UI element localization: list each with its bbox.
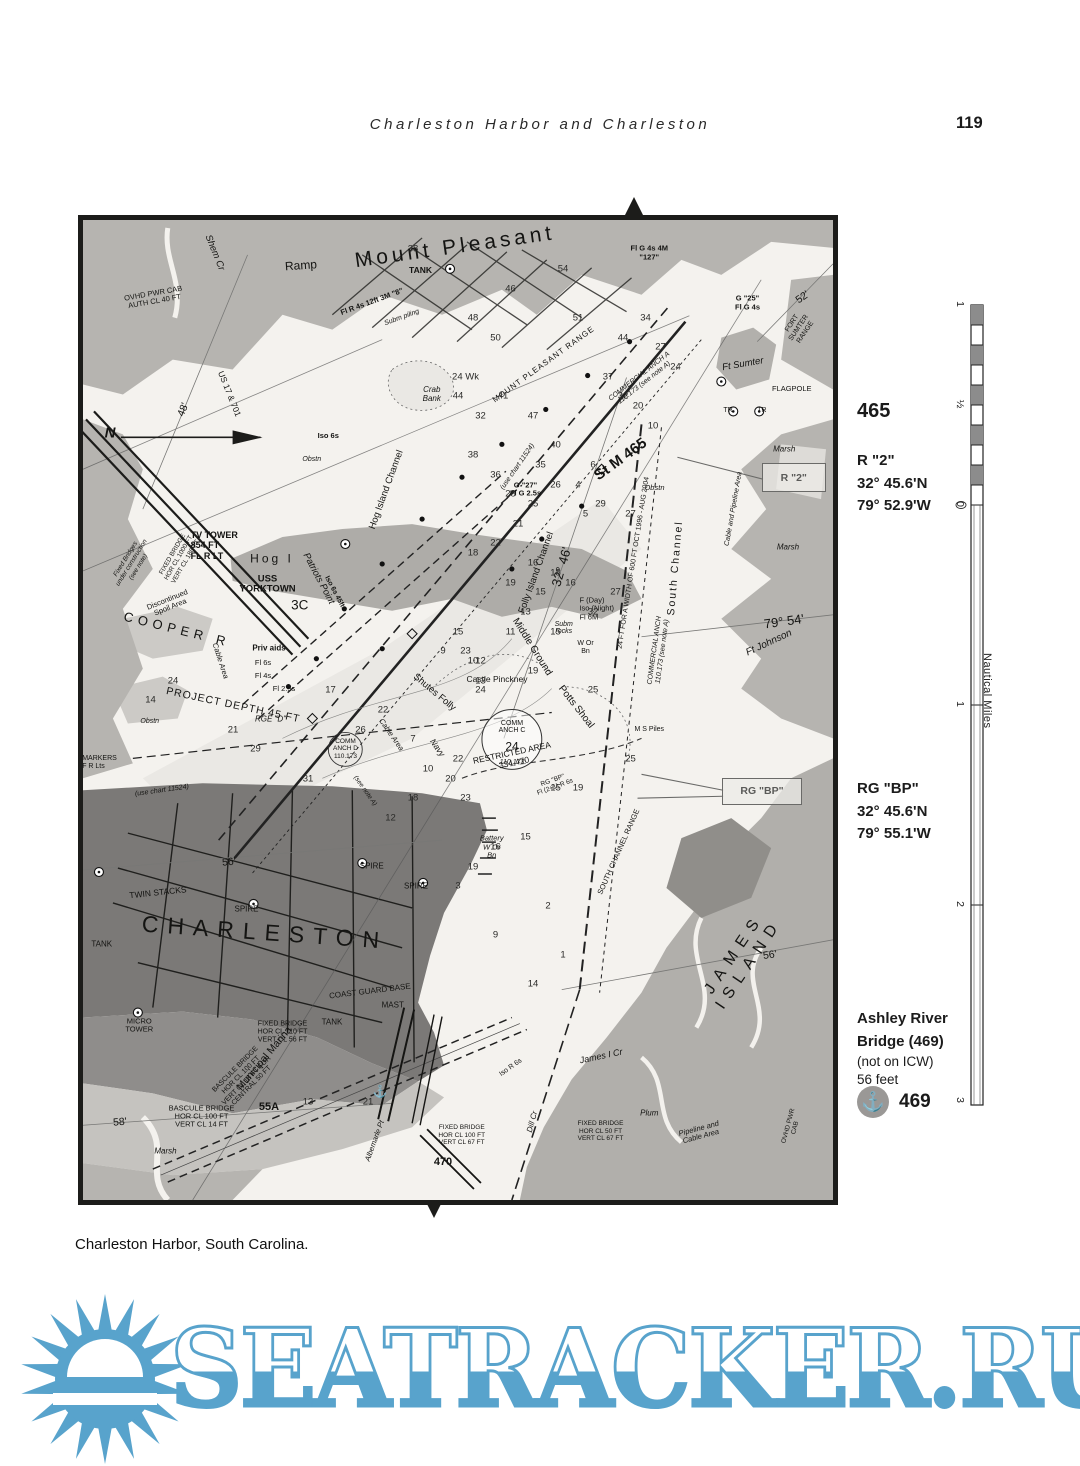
depth-sounding: 32 <box>618 391 629 402</box>
map-label: BASCULE BRIDGE HOR CL 100 FT VERT CL 18 … <box>210 1044 279 1113</box>
map-label: Hog I <box>250 552 294 565</box>
depth-sounding: 14 <box>145 695 156 706</box>
depth-sounding: 54 <box>558 264 569 275</box>
depth-sounding: 25 <box>528 499 539 510</box>
scale-title: Nautical Miles <box>981 653 993 728</box>
anchorage-icon: ⚓ <box>373 1085 388 1098</box>
map-label: Ft Sumter <box>722 356 765 374</box>
chart-labels: R "2" RG "BP" Mount PleasantRampTANKShem… <box>83 220 833 1200</box>
bridge-name-line1: Ashley River <box>857 1008 948 1031</box>
scale-tick: 2 <box>954 896 966 912</box>
depth-sounding: 18 <box>468 548 479 559</box>
map-label: G "25" Fl G 4s <box>735 295 760 312</box>
depth-sounding: 27 <box>610 587 621 598</box>
map-label: OVHD PWR CAB AUTH CL 40 FT <box>124 285 185 312</box>
map-label: TANK <box>91 941 112 950</box>
depth-sounding: 15 <box>520 832 531 843</box>
map-label: 79° 54' <box>763 612 805 632</box>
depth-sounding: 24 <box>670 362 681 373</box>
watermark: SEATRACKER.RU SEATRACKER.RU <box>0 1292 1080 1464</box>
depth-sounding: 24 <box>475 685 486 696</box>
map-label: RGE "D" <box>255 715 286 724</box>
mile-marker-465: 465 <box>857 400 890 423</box>
depth-sounding: 29 <box>595 499 606 510</box>
depth-sounding: 1 <box>560 950 565 961</box>
map-label: (use chart 11524) <box>134 784 189 799</box>
depth-sounding: 16 <box>565 577 576 588</box>
depth-sounding: 51 <box>573 313 584 324</box>
buoy-r2-lon: 79° 52.9'W <box>857 495 931 518</box>
map-label: SPIRE <box>360 862 384 871</box>
depth-sounding: 32 <box>475 411 486 422</box>
buoy-rgbp-info: RG "BP" 32° 45.6'N 79° 55.1'W <box>857 778 931 846</box>
map-label: PROJECT DEPTH 45 FT <box>165 686 301 726</box>
depth-sounding: 19 <box>528 665 539 676</box>
map-label: Obstn <box>140 718 159 726</box>
map-label: Pipeline and Cable Area <box>678 1120 722 1147</box>
map-label: Patriots Point <box>300 551 336 606</box>
depth-sounding: 50 <box>490 332 501 343</box>
depth-sounding: 19 <box>573 783 584 794</box>
chart-caption: Charleston Harbor, South Carolina. <box>75 1236 308 1253</box>
depth-sounding: 6 <box>590 460 595 471</box>
bridge-anchor-row: ⚓ 469 <box>857 1086 931 1118</box>
map-label: M S Piles <box>634 726 664 734</box>
depth-sounding: 25 <box>625 754 636 765</box>
map-label: N <box>105 425 116 442</box>
depth-sounding: 11 <box>506 626 516 637</box>
map-label: Navy <box>428 738 447 759</box>
buoy-rgbp-lat: 32° 45.6'N <box>857 801 931 824</box>
anchor-icon: ⚓ <box>857 1086 889 1118</box>
map-label: James I Cr <box>578 1046 623 1065</box>
map-label: MAST <box>382 1001 404 1010</box>
map-label: Fl 6s <box>255 659 271 667</box>
depth-sounding: 9 <box>440 646 445 657</box>
depth-sounding: 19 <box>505 577 516 588</box>
map-label: COAST GUARD BASE <box>328 983 411 1002</box>
map-label: Ft Johnson <box>744 628 794 659</box>
scale-tick: 3 <box>954 1092 966 1108</box>
map-label: 110.173 <box>500 759 525 767</box>
depth-sounding: 20 <box>445 773 456 784</box>
map-label: Cable and Pipeline Area <box>724 471 745 546</box>
depth-sounding: 41 <box>498 391 509 402</box>
depth-sounding: 37 <box>603 371 614 382</box>
map-label: Fl 4s <box>255 671 271 679</box>
buoy-r2-lat: 32° 45.6'N <box>857 473 931 496</box>
depth-sounding: 15 <box>453 626 464 637</box>
map-label: Fl 2.5s <box>273 685 296 693</box>
map-label: Crab Bank <box>423 386 441 404</box>
depth-sounding: 12 <box>385 812 396 823</box>
depth-sounding: 13 <box>520 607 531 618</box>
label-cooper-river: COOPER R <box>122 609 232 650</box>
map-label: FORT SUMTER RANGE <box>780 307 818 348</box>
scale-tick: 1 <box>954 696 966 712</box>
depth-sounding: 3 <box>455 881 460 892</box>
map-label: 3C <box>291 598 308 613</box>
bridge-info: Ashley River Bridge (469) (not on ICW) 5… <box>857 1008 948 1089</box>
label-charleston: CHARLESTON <box>141 912 389 955</box>
map-label: Fl R 4s 12ft 3M "8" <box>340 287 405 317</box>
map-label: 56' <box>222 856 237 869</box>
map-label: TANK <box>322 1018 343 1027</box>
map-label: South Channel <box>665 520 685 616</box>
nautical-chart: R "2" RG "BP" Mount PleasantRampTANKShem… <box>78 215 838 1205</box>
map-label: W Or Bn <box>577 640 593 656</box>
depth-sounding: 22 <box>378 705 389 716</box>
map-label: Fixed Bridges under construction (see no… <box>108 535 155 592</box>
depth-sounding: 31 <box>303 773 314 784</box>
depth-sounding: 9 <box>493 930 498 941</box>
depth-sounding: 22 <box>453 754 464 765</box>
map-label: Priv aids <box>252 645 285 654</box>
map-label: Marsh <box>154 1147 176 1156</box>
map-label: Iso R 6s <box>498 1057 524 1078</box>
map-label: RESTRICTED AREA 334.470 <box>472 740 554 775</box>
label-james-island: JAMES ISLAND <box>697 905 786 1013</box>
map-label: Marsh <box>777 544 799 553</box>
map-label: Marsh <box>773 446 795 455</box>
depth-sounding: 2 <box>545 901 550 912</box>
depth-sounding: 38 <box>468 450 479 461</box>
map-label: OVHD PWR CAB <box>779 1105 804 1149</box>
map-label: SPIRE <box>234 905 258 914</box>
map-label: Albemarle Pt <box>363 1120 386 1163</box>
map-label: Iso 6s 45ft <box>323 575 346 609</box>
map-label: Shutes Folly <box>411 672 458 714</box>
depth-sounding: 19 <box>468 861 479 872</box>
label-mount-pleasant: Mount Pleasant <box>353 222 556 273</box>
map-label: US 17 & 701 <box>216 370 243 418</box>
map-label: COMM ANCH D 110.173 <box>333 738 358 760</box>
buoy-rgbp-lon: 79° 55.1'W <box>857 823 931 846</box>
map-label: 24 <box>505 741 518 754</box>
map-label: MARKERS F R Lts <box>82 755 117 771</box>
depth-sounding: 15 <box>550 783 561 794</box>
map-label: Cable Area <box>210 642 229 680</box>
depth-sounding: 28 <box>505 489 516 500</box>
depth-sounding: 10 <box>468 656 479 667</box>
map-label: Plum <box>640 1109 658 1118</box>
depth-sounding: 15 <box>550 626 561 637</box>
depth-sounding: 35 <box>535 460 546 471</box>
depth-sounding: 24 Wk <box>452 371 479 382</box>
depth-sounding: 21 <box>363 1097 374 1108</box>
map-label: MICRO TOWER <box>125 1017 153 1034</box>
depth-sounding: 16 <box>490 842 501 853</box>
depth-sounding: 38 <box>408 244 419 255</box>
scale-tick: 0 <box>954 496 966 512</box>
map-label: BASCULE BRIDGE HOR CL 100 FT VERT CL 14 … <box>169 1104 235 1129</box>
depth-sounding: 27 <box>625 509 636 520</box>
depth-sounding: 44 <box>453 391 464 402</box>
depth-sounding: 18 <box>550 567 561 578</box>
map-label: TV TOWER 854 FT FL R LT <box>191 530 238 560</box>
map-label: COMMERCIAL ANCH 110.173 (see note A) <box>646 616 671 686</box>
map-label: TANK <box>409 266 432 276</box>
depth-sounding: 44 <box>618 332 629 343</box>
depth-sounding: 16 <box>528 558 539 569</box>
depth-sounding: 32 <box>588 607 599 618</box>
map-label: TR <box>723 407 732 415</box>
depth-sounding: 46 <box>505 283 516 294</box>
map-label: (see note A) <box>352 775 378 808</box>
callout-rg-bp: RG "BP" <box>722 778 802 805</box>
label-bridge-470: 470 <box>434 1156 452 1168</box>
map-label: FIXED BRIDGE HOR CL 100 FT VERT CL 67 FT <box>438 1124 485 1146</box>
map-label: 56' <box>762 949 777 963</box>
depth-sounding: 26 <box>550 479 561 490</box>
bridge-note: (not on ICW) <box>857 1053 948 1071</box>
depth-sounding: 27 <box>655 342 666 353</box>
depth-sounding: 23 <box>460 793 471 804</box>
depth-sounding: 22 <box>490 538 501 549</box>
book-page: Charleston Harbor and Charleston 119 <box>0 0 1080 1466</box>
map-label: (use chart 11524) <box>499 442 537 491</box>
map-label: Cable Area <box>376 717 404 752</box>
scale-tick: 1 <box>954 296 966 312</box>
depth-sounding: 21 <box>228 724 239 735</box>
depth-sounding: 25 <box>588 685 599 696</box>
map-label: COMM ANCH C <box>499 720 526 736</box>
depth-sounding: 5 <box>583 509 588 520</box>
depth-sounding: 40 <box>550 440 561 451</box>
map-label: 52' <box>794 290 812 307</box>
depth-sounding: 21 <box>513 518 524 529</box>
depth-sounding: 17 <box>325 685 336 696</box>
depth-sounding: 7 <box>410 734 415 745</box>
depth-sounding: 10 <box>423 763 434 774</box>
depth-sounding: 10 <box>648 420 659 431</box>
label-bridge-55a: 55A <box>259 1101 279 1113</box>
north-arrow-marker <box>625 197 643 215</box>
depth-sounding: 47 <box>528 411 539 422</box>
depth-sounding: 15 <box>535 587 546 598</box>
map-label: 48' <box>175 402 191 419</box>
depth-sounding: 14 <box>528 979 539 990</box>
page-title: Charleston Harbor and Charleston <box>0 116 1080 133</box>
map-label: Hog Island Channel <box>367 448 406 530</box>
map-label: FLAGPOLE <box>772 384 812 392</box>
buoy-rgbp-name: RG "BP" <box>857 778 931 801</box>
map-label: FIXED BRIDGE HOR CL 50 FT VERT CL 67 FT <box>578 1120 624 1142</box>
map-label: USS YORKTOWN <box>239 574 295 595</box>
depth-sounding: 34 <box>640 313 651 324</box>
depth-sounding: 26 <box>355 724 366 735</box>
map-label: 58' <box>112 1116 127 1129</box>
map-label: Subm piling <box>383 308 420 328</box>
map-label: FIXED BRIDGE HOR CL 1000 FT VERT CL 186 … <box>157 531 201 585</box>
map-label: Shem Cr <box>202 234 226 273</box>
depth-sounding: 29 <box>250 744 261 755</box>
map-label: Discontinued Spoil Area <box>146 588 192 620</box>
map-label: Fl G 4s 4M "127" <box>630 245 668 262</box>
depth-sounding: 13 <box>303 1097 314 1108</box>
depth-sounding: 24 <box>168 675 179 686</box>
map-label: SOUTH CHANNEL RANGE <box>597 808 642 896</box>
map-label: Obstn <box>644 483 664 491</box>
depth-sounding: 18 <box>408 793 419 804</box>
label-st-m-465: St M 465 <box>591 435 650 484</box>
depth-sounding: 48 <box>468 313 479 324</box>
map-label: Municipal Marina <box>235 1025 295 1093</box>
map-label: Obstn <box>302 456 321 464</box>
map-label: FIXED BRIDGE HOR CL 110 FT VERT CL 56 FT <box>258 1021 308 1044</box>
map-label: SPIRE <box>404 883 428 892</box>
depth-sounding: 4 <box>575 479 580 490</box>
bridge-number: 469 <box>899 1091 931 1113</box>
buoy-r2-info: R "2" 32° 45.6'N 79° 52.9'W <box>857 450 931 518</box>
depth-sounding: 20 <box>633 401 644 412</box>
scale-tick: ½ <box>954 396 966 412</box>
callout-r2: R "2" <box>762 463 826 492</box>
sun-logo-icon <box>18 1292 192 1466</box>
map-label: Iso 6s <box>318 431 339 439</box>
page-number: 119 <box>956 114 983 133</box>
map-label: TR <box>757 407 766 415</box>
map-label: TWIN STACKS <box>129 886 187 901</box>
map-label: Ramp <box>284 258 317 274</box>
bridge-name-line2: Bridge (469) <box>857 1031 948 1054</box>
map-label: Dill Cr <box>526 1110 540 1133</box>
depth-sounding: 36 <box>490 469 501 480</box>
buoy-r2-name: R "2" <box>857 450 931 473</box>
map-label: 24 FT FOR A WIDTH OF 600 FT OCT 1996 - A… <box>617 477 652 650</box>
